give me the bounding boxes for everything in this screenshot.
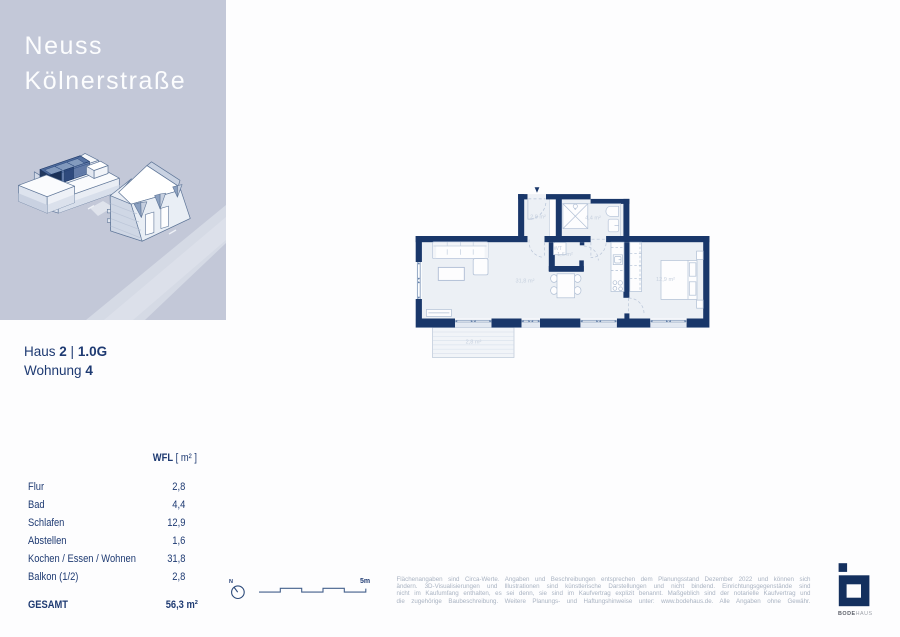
svg-text:12,9 m²: 12,9 m² [656, 277, 675, 283]
svg-text:31,8 m²: 31,8 m² [516, 279, 535, 285]
svg-text:WT: WT [553, 246, 562, 252]
svg-text:4,4 m²: 4,4 m² [585, 216, 601, 222]
svg-text:2,8 m²: 2,8 m² [466, 340, 482, 346]
svg-text:1,6 m²: 1,6 m² [557, 252, 573, 258]
svg-text:2,8 m²: 2,8 m² [530, 215, 546, 221]
